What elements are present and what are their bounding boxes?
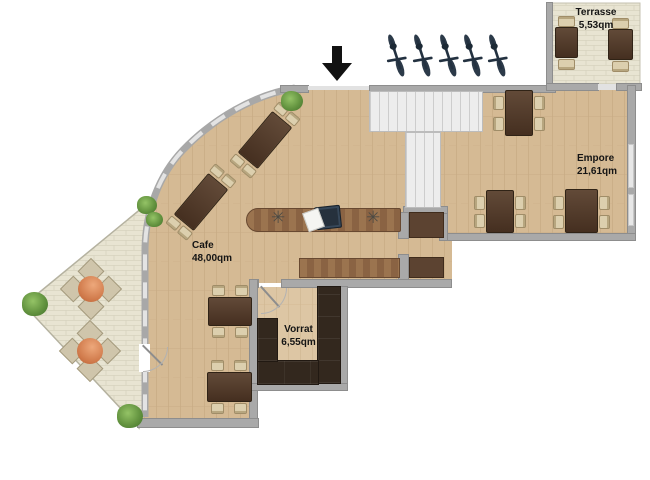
chair (553, 215, 564, 229)
wall-terrasse-bottom-a (546, 83, 599, 91)
bicycle-icon (379, 32, 412, 80)
wall-mid-main (281, 279, 452, 288)
chair (474, 196, 485, 210)
chair (234, 360, 247, 371)
chair (234, 403, 247, 414)
entrance-threshold (308, 86, 370, 90)
floor-plan: ✳ ✳ (0, 0, 650, 480)
room-area: 6,55qm (281, 337, 315, 348)
room-area: 48,00qm (192, 253, 232, 264)
room-name: Cafe (192, 240, 214, 251)
bicycle-icon (405, 32, 438, 80)
dining-table (565, 189, 598, 233)
storage-shelf-bottom (257, 360, 319, 385)
flower-decor-icon: ✳ (271, 209, 285, 226)
chair (599, 196, 610, 210)
room-label-cafe: Cafe 48,00qm (192, 239, 232, 265)
terrace-table (608, 29, 633, 60)
plant-icon (146, 212, 163, 227)
chair (211, 360, 224, 371)
window-right-upper (628, 144, 634, 188)
room-area: 21,61qm (577, 166, 617, 177)
staircase-lower-flight (405, 132, 441, 208)
dining-table (207, 372, 252, 402)
room-name: Vorrat (284, 324, 313, 335)
room-label-terrasse: Terrasse 5,53qm (552, 6, 640, 32)
plant-icon (281, 91, 303, 111)
bar-counter-back-segment (409, 212, 444, 238)
room-label-vorrat: Vorrat 6,55qm (257, 323, 340, 349)
service-counter (299, 258, 400, 278)
outdoor-round-table (72, 333, 109, 370)
plant-icon (22, 292, 48, 316)
bicycle-icon (455, 32, 488, 80)
service-counter-back-segment (409, 257, 444, 278)
chair (515, 214, 526, 228)
dining-table (208, 297, 252, 326)
plant-icon (117, 404, 143, 428)
chair (553, 196, 564, 210)
staircase-upper-flight (369, 91, 483, 132)
room-area: 5,53qm (579, 20, 613, 31)
room-name: Empore (577, 153, 614, 164)
chair (558, 59, 575, 70)
dining-table (505, 90, 533, 136)
chair (534, 96, 545, 110)
chair (612, 61, 629, 72)
wall-cafe-bottom (137, 418, 259, 428)
room-label-empore: Empore 21,61qm (577, 152, 617, 178)
bicycle-icon (431, 32, 464, 80)
chair (474, 214, 485, 228)
chair (212, 327, 225, 338)
chair (235, 285, 248, 296)
room-name: Terrasse (576, 7, 617, 18)
chair (235, 327, 248, 338)
outdoor-round-table (73, 271, 110, 308)
bicycle-icon (480, 32, 513, 80)
chair (211, 403, 224, 414)
entrance-arrow-icon (322, 46, 352, 81)
chair (493, 117, 504, 131)
chair (599, 215, 610, 229)
chair (515, 196, 526, 210)
chair (212, 285, 225, 296)
flower-decor-icon: ✳ (366, 209, 380, 226)
window-right-lower (628, 194, 634, 226)
wall-empore-bottom (441, 233, 636, 241)
chair (534, 117, 545, 131)
dining-table (486, 190, 514, 233)
terrasse-door-opening (598, 84, 617, 90)
chair (493, 96, 504, 110)
